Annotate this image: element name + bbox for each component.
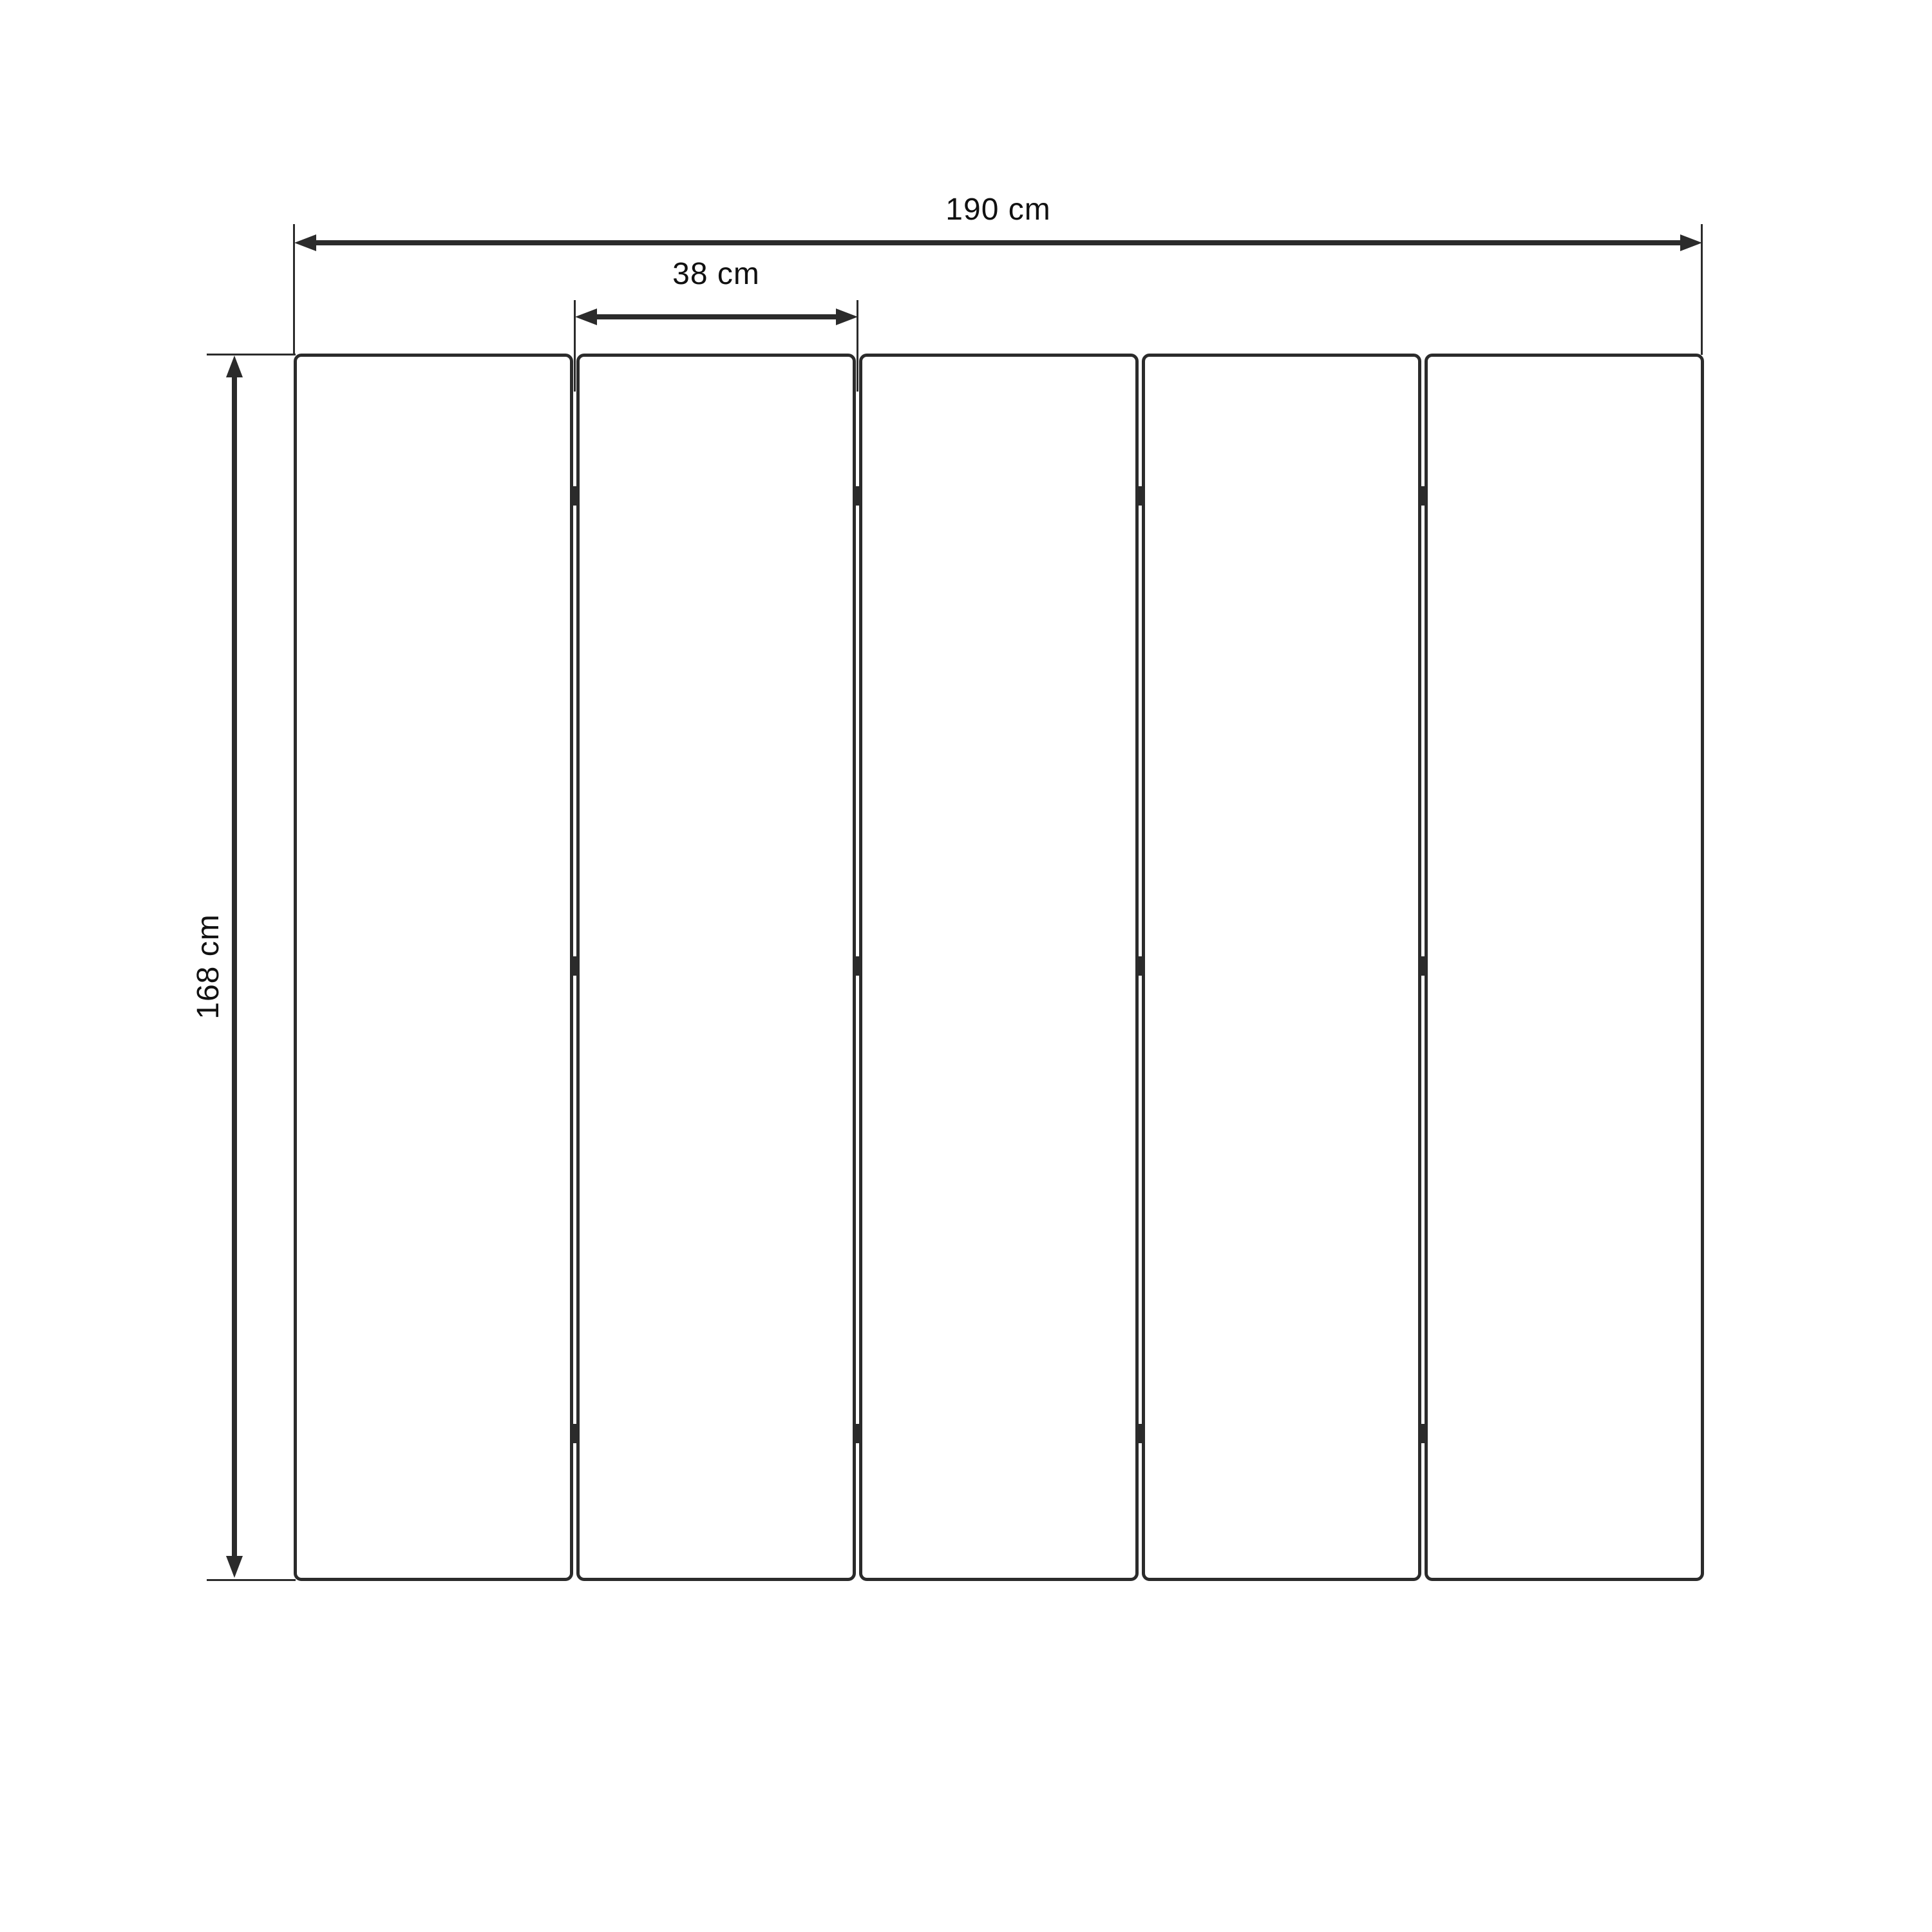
arrowhead-left-icon <box>575 308 597 325</box>
panels-row <box>294 354 1704 1581</box>
hinge <box>1135 486 1145 506</box>
hinge <box>570 1424 580 1443</box>
dimension-line <box>587 314 845 319</box>
height-label: 168 cm <box>191 870 227 1063</box>
hinge <box>1135 956 1145 976</box>
hinge <box>853 956 862 976</box>
dimension-line <box>232 372 237 1561</box>
extension-line <box>207 354 296 355</box>
hinge <box>1135 1424 1145 1443</box>
hinge <box>570 956 580 976</box>
panel-1 <box>294 354 573 1581</box>
panel-3 <box>859 354 1139 1581</box>
dimension-line <box>308 240 1689 245</box>
arrowhead-right-icon <box>836 308 858 325</box>
hinge <box>1418 956 1428 976</box>
extension-line <box>207 1579 296 1581</box>
hinge <box>853 486 862 506</box>
folding-screen-diagram: 190 cm 38 cm 168 cm <box>0 0 1932 1932</box>
hinge <box>1418 1424 1428 1443</box>
hinge <box>853 1424 862 1443</box>
panel-width-label: 38 cm <box>620 256 813 292</box>
hinge <box>1418 486 1428 506</box>
total-width-label: 190 cm <box>902 192 1095 228</box>
arrowhead-down-icon <box>226 1556 243 1578</box>
panel-2 <box>576 354 856 1581</box>
panel-5 <box>1425 354 1704 1581</box>
panel-4 <box>1142 354 1421 1581</box>
arrowhead-up-icon <box>226 355 243 377</box>
arrowhead-right-icon <box>1680 234 1702 251</box>
hinge <box>570 486 580 506</box>
arrowhead-left-icon <box>294 234 316 251</box>
